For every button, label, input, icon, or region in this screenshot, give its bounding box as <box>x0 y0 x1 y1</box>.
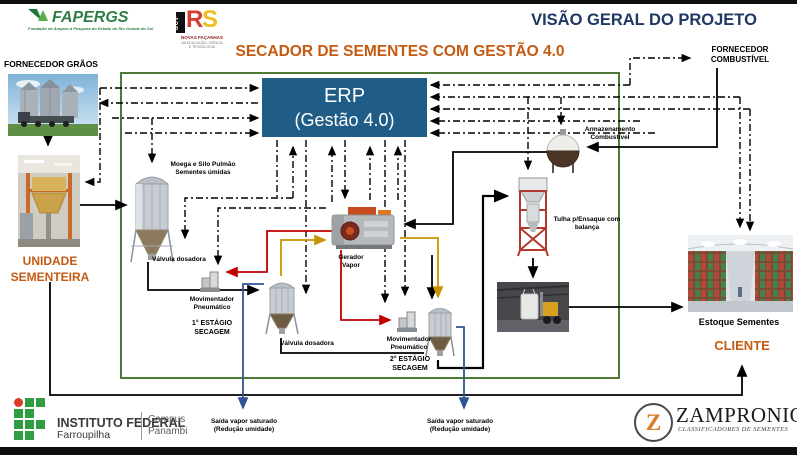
seed-stock-photo <box>688 235 793 312</box>
fuel-storage-sphere-graphic <box>543 129 583 175</box>
label-dosing-valve-2: Válvula dosadora <box>274 340 340 348</box>
gov-box: GOV <box>176 12 185 33</box>
rs-slogan: NOVAS FAÇANHAS <box>176 35 228 40</box>
label-hopper-line2: balança <box>552 224 622 232</box>
campus-line1: Campus <box>148 414 208 426</box>
label-first-stage-line1: 1° ESTÁGIO <box>176 319 248 328</box>
label-mover2-line1: Movimentador <box>366 336 452 344</box>
moega-silo-graphic <box>128 168 176 268</box>
grain-supplier-photo <box>8 74 98 136</box>
label-second-stage-line2: SECAGEM <box>372 364 448 373</box>
campus-line2: Panambi <box>148 426 208 438</box>
label-moega: Moega e Silo Pulmão Sementes úmidas <box>164 161 242 177</box>
label-moega-line2: Sementes úmidas <box>164 169 242 177</box>
label-vapor-out-2-line2: (Redução umidade) <box>414 426 506 434</box>
label-seed-unit-line1: UNIDADE <box>0 253 100 269</box>
label-seed-unit: UNIDADE SEMENTEIRA <box>0 253 100 285</box>
gov-label: GOV <box>174 16 180 30</box>
label-fuel-supplier-line1: FORNECEDOR <box>694 45 786 55</box>
seed-unit-photo <box>18 155 80 247</box>
label-fuel-storage: Armazenamento Combustível <box>578 126 642 142</box>
label-steam-generator: Gerador Vapor <box>324 254 378 270</box>
label-grain-supplier: FORNECEDOR GRÃOS <box>4 59 114 69</box>
slide: FAPERGS Fundação de Amparo à Pesquisa do… <box>0 0 797 455</box>
pneumatic-mover-2-graphic <box>395 310 419 334</box>
label-vapor-out-2: Saída vapor saturado (Redução umidade) <box>414 418 506 434</box>
rs-letter-r: R <box>186 6 203 34</box>
label-vapor-out-1: Saída vapor saturado (Redução umidade) <box>198 418 290 434</box>
label-generator-line2: Vapor <box>324 262 378 270</box>
page-title: VISÃO GERAL DO PROJETO <box>500 11 788 30</box>
top-border-bar <box>0 0 797 4</box>
label-seed-unit-line2: SEMENTEIRA <box>0 269 100 285</box>
pneumatic-mover-1-graphic <box>198 270 222 294</box>
label-client: CLIENTE <box>700 338 784 353</box>
label-vapor-out-1-line1: Saída vapor saturado <box>198 418 290 426</box>
footer-divider <box>141 412 142 440</box>
label-mover1-line1: Movimentador <box>170 296 254 304</box>
label-hopper-line1: Tulha p/Ensaque com <box>552 216 622 224</box>
bagging-hopper-graphic <box>512 176 554 258</box>
label-mover1-line2: Pneumático <box>170 304 254 312</box>
rs-letter-s: S <box>202 6 218 34</box>
label-mover2-line2: Pneumático <box>366 344 452 352</box>
campus-label: Campus Panambi <box>148 414 208 438</box>
zampronio-subtitle: CLASSIFICADORES DE SEMENTES <box>678 426 797 433</box>
label-vapor-out-1-line2: (Redução umidade) <box>198 426 290 434</box>
erp-box: ERP (Gestão 4.0) <box>262 78 427 137</box>
label-second-stage: 2° ESTÁGIO SECAGEM <box>372 355 448 373</box>
erp-title: ERP <box>262 84 427 109</box>
label-generator-line1: Gerador <box>324 254 378 262</box>
label-first-stage: 1° ESTÁGIO SECAGEM <box>176 319 248 337</box>
zampronio-z-icon: Z <box>634 403 673 442</box>
label-fuel-storage-line2: Combustível <box>578 134 642 142</box>
label-first-stage-line2: SECAGEM <box>176 328 248 337</box>
fapergs-triangles-icon: FAPERGS <box>28 7 188 25</box>
label-fuel-supplier-line2: COMBUSTÍVEL <box>694 55 786 65</box>
fapergs-tagline: Fundação de Amparo à Pesquisa do Estado … <box>28 26 188 31</box>
label-vapor-out-2-line1: Saída vapor saturado <box>414 418 506 426</box>
label-seed-stock: Estoque Sementes <box>686 317 792 327</box>
fapergs-logo: FAPERGS Fundação de Amparo à Pesquisa do… <box>28 7 188 31</box>
fapergs-name: FAPERGS <box>52 9 129 25</box>
label-fuel-supplier: FORNECEDOR COMBUSTÍVEL <box>694 45 786 65</box>
diagram-title: SECADOR DE SEMENTES COM GESTÃO 4.0 <box>158 43 642 61</box>
zampronio-name: ZAMPRONIO <box>676 403 796 428</box>
bigbag-photo <box>497 282 569 332</box>
label-second-stage-line1: 2° ESTÁGIO <box>372 355 448 364</box>
label-moega-line1: Moega e Silo Pulmão <box>164 161 242 169</box>
steam-generator-graphic <box>328 205 400 252</box>
label-pneumatic-mover-1: Movimentador Pneumático <box>170 296 254 312</box>
bottom-border-bar <box>0 447 797 455</box>
label-pneumatic-mover-2: Movimentador Pneumático <box>366 336 452 352</box>
label-fuel-storage-line1: Armazenamento <box>578 126 642 134</box>
first-stage-dryer-graphic <box>264 276 300 338</box>
label-bagging-hopper: Tulha p/Ensaque com balança <box>552 216 622 232</box>
instituto-federal-logo <box>14 398 62 442</box>
erp-subtitle: (Gestão 4.0) <box>262 109 427 132</box>
label-dosing-valve-1: Válvula dosadora <box>152 256 214 264</box>
